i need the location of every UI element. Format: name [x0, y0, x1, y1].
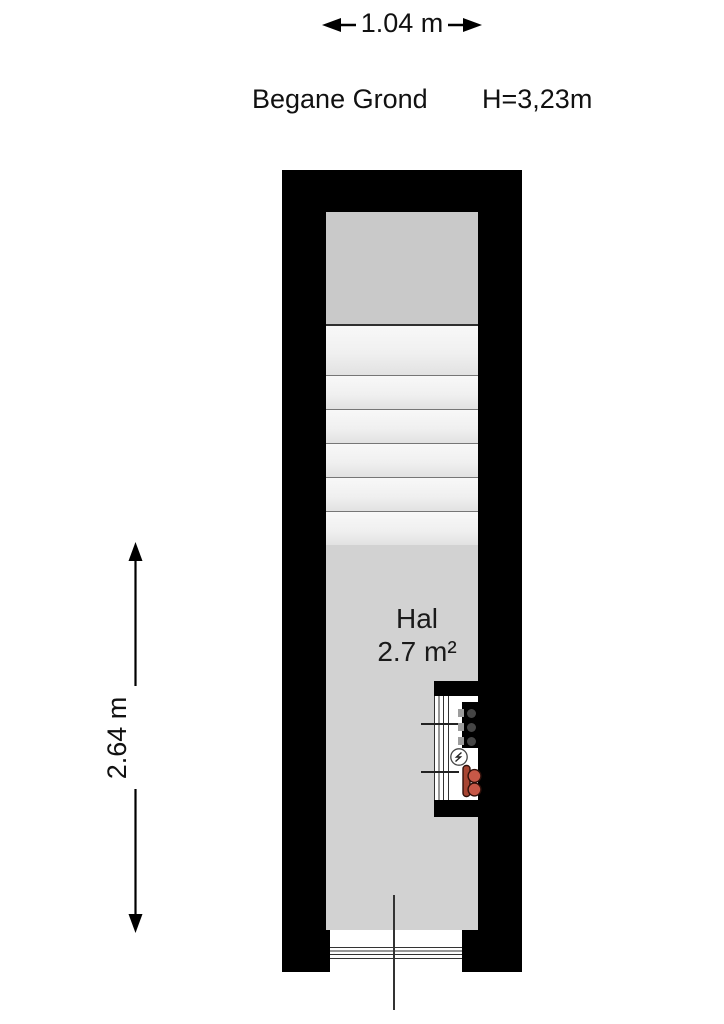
room-name: Hal [356, 602, 478, 635]
fuse-box-icon [462, 702, 478, 748]
gas-water-meter-icon [461, 763, 485, 799]
stair-tread [326, 326, 478, 376]
fuse-row [462, 734, 478, 748]
door-threshold [330, 947, 462, 960]
fuse-row [462, 706, 478, 720]
arrow-left-icon [322, 18, 341, 32]
meter-connection-line [421, 723, 462, 725]
width-dimension-label: 1.04 m [352, 8, 452, 39]
height-dimension-label: 2.64 m [102, 693, 132, 783]
arrow-down-icon [129, 914, 143, 933]
stair-tread [326, 376, 478, 410]
floor-title: Begane Grond [252, 84, 428, 115]
meter-cupboard-wall-bottom [434, 800, 478, 817]
meter-cupboard-wall-top [434, 681, 478, 696]
arrow-right-icon [463, 18, 482, 32]
stair-tread [326, 410, 478, 444]
stair-landing [326, 212, 478, 326]
arrow-up-icon [129, 542, 143, 561]
door-centerline [393, 895, 395, 1010]
stair-tread [326, 512, 478, 545]
stair-tread [326, 478, 478, 512]
room-label: Hal 2.7 m² [326, 602, 478, 668]
meter-connection-line [421, 771, 459, 773]
room-interior [326, 212, 478, 930]
room-area: 2.7 m² [356, 635, 478, 668]
stair-tread [326, 444, 478, 478]
ceiling-height-label: H=3,23m [482, 84, 592, 115]
staircase [326, 326, 478, 545]
fuse-row [462, 720, 478, 734]
shaft-lines [434, 696, 449, 800]
